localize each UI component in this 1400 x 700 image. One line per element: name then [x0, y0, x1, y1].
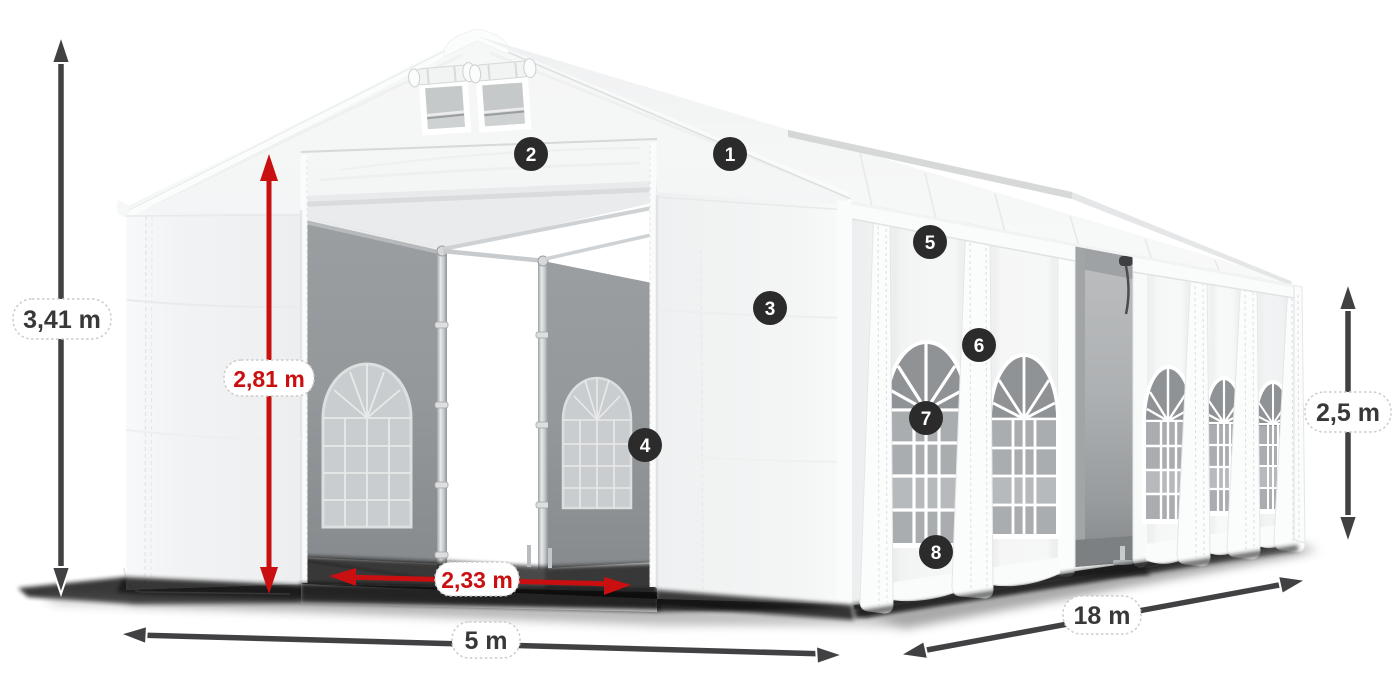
svg-text:2: 2	[526, 145, 537, 166]
svg-text:2,33 m: 2,33 m	[441, 567, 513, 593]
svg-text:7: 7	[921, 409, 932, 430]
svg-text:4: 4	[640, 436, 651, 457]
svg-text:2,81 m: 2,81 m	[233, 366, 305, 392]
svg-text:2,5 m: 2,5 m	[1316, 399, 1380, 427]
svg-text:3: 3	[765, 299, 776, 320]
svg-text:8: 8	[931, 543, 942, 564]
svg-text:5 m: 5 m	[464, 627, 507, 655]
svg-text:6: 6	[974, 336, 985, 357]
svg-text:1: 1	[725, 145, 736, 166]
svg-text:18 m: 18 m	[1074, 602, 1131, 630]
svg-text:3,41 m: 3,41 m	[23, 306, 101, 334]
svg-text:5: 5	[925, 233, 936, 254]
